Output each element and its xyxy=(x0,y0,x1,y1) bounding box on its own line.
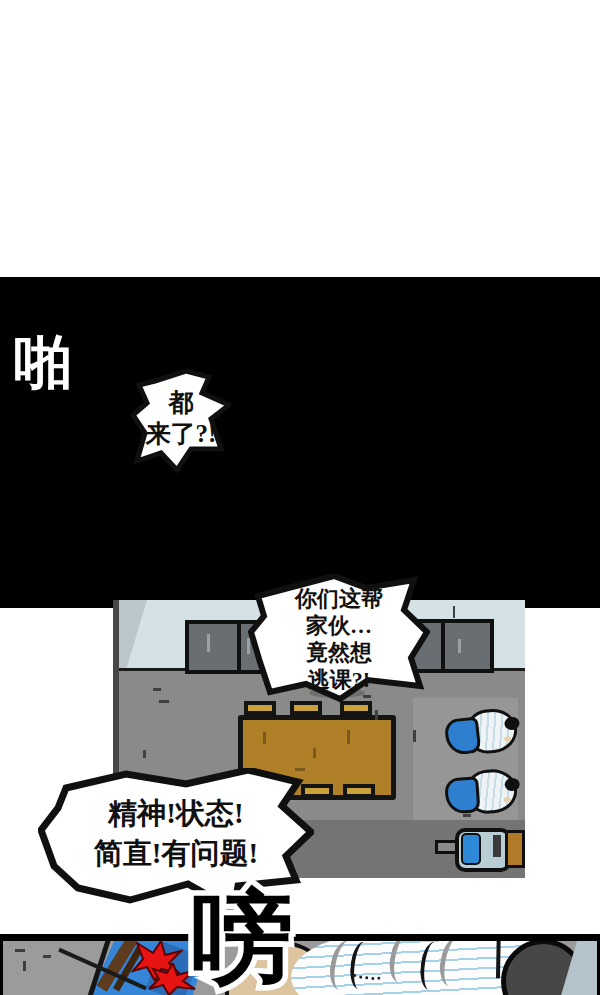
bubble-1-line-1: 都 xyxy=(169,387,194,418)
student-shoe xyxy=(504,777,520,791)
scribble xyxy=(153,688,161,691)
bubble-2-line-1: 你们这帮 xyxy=(295,585,383,612)
scribble xyxy=(375,710,378,720)
chair xyxy=(244,701,276,715)
bubble-3-line-1: 精神!状态! xyxy=(108,793,243,833)
student-jacket xyxy=(444,716,482,755)
pen-stroke xyxy=(496,936,501,978)
panel-classroom xyxy=(0,277,600,608)
scribble xyxy=(413,730,416,742)
scribble xyxy=(23,961,26,971)
speech-bubble-2: 你们这帮 家伙… 竟然想 逃课?! xyxy=(248,574,430,702)
student-jacket xyxy=(444,776,480,814)
chair xyxy=(340,701,372,715)
bubble-3-line-2: 简直!有问题! xyxy=(94,833,258,873)
notebook-paper xyxy=(289,934,533,995)
scribble xyxy=(15,949,25,952)
table-scribble xyxy=(347,730,350,744)
window-streak xyxy=(207,634,210,652)
scribble xyxy=(453,606,455,618)
speech-bubble-1: 都 来了?! xyxy=(131,369,231,473)
chair-back xyxy=(493,835,501,857)
bubble-2-line-2: 家伙… xyxy=(306,612,372,639)
sfx-pang-fill: 嗙 xyxy=(192,888,294,990)
student-shoe xyxy=(504,716,520,730)
window-divider xyxy=(237,624,241,670)
sfx-pang: 嗙 嗙 xyxy=(192,888,312,995)
bowing-student-2 xyxy=(443,763,522,816)
table-scribble xyxy=(263,732,266,744)
bubble-2-line-3: 竟然想 xyxy=(306,639,372,666)
comic-page: 啪 都 来了?! 你们这帮 家伙… 竟然想 逃课?! 精神!状态! 简直!有问题… xyxy=(0,0,600,995)
chair xyxy=(343,784,375,798)
student-at-desk xyxy=(435,826,525,870)
scribble xyxy=(43,955,51,958)
student-hood xyxy=(461,833,481,865)
table-scribble xyxy=(313,748,316,758)
bowing-student-1 xyxy=(443,702,524,758)
pen-stroke xyxy=(418,941,446,991)
chair xyxy=(290,701,322,715)
bubble-2-line-4: 逃课?! xyxy=(308,666,370,693)
scribble xyxy=(463,814,471,817)
bubble-1-line-2: 来了?! xyxy=(146,418,217,449)
impact-star-2 xyxy=(149,963,197,995)
desk xyxy=(505,830,525,868)
sfx-pa: 啪 xyxy=(14,334,72,392)
window-divider xyxy=(441,623,445,669)
pen-stroke xyxy=(386,934,422,985)
scribble xyxy=(143,750,146,758)
window-streak xyxy=(458,639,461,653)
scribble xyxy=(159,700,169,703)
